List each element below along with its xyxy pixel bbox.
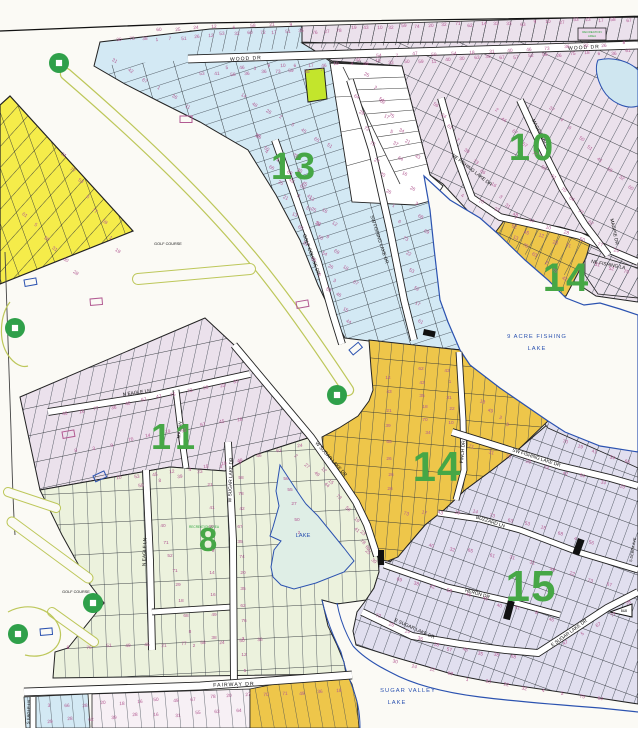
svg-text:59: 59 bbox=[418, 59, 424, 65]
svg-text:75: 75 bbox=[570, 51, 576, 57]
svg-text:10: 10 bbox=[377, 25, 383, 31]
svg-text:50: 50 bbox=[153, 697, 159, 703]
svg-text:21: 21 bbox=[386, 408, 392, 414]
svg-text:50: 50 bbox=[239, 638, 245, 644]
svg-text:10: 10 bbox=[545, 19, 551, 25]
svg-text:28: 28 bbox=[67, 716, 73, 722]
svg-text:15: 15 bbox=[203, 464, 209, 470]
svg-text:77: 77 bbox=[181, 641, 187, 647]
svg-text:GOLF COURSE: GOLF COURSE bbox=[62, 590, 90, 594]
svg-text:S EAGLE LN: S EAGLE LN bbox=[26, 700, 32, 725]
svg-text:36: 36 bbox=[257, 637, 263, 643]
svg-text:74: 74 bbox=[239, 554, 245, 560]
svg-text:50: 50 bbox=[294, 517, 300, 523]
svg-text:14: 14 bbox=[209, 570, 215, 576]
svg-text:10: 10 bbox=[116, 475, 122, 481]
svg-text:LAKE: LAKE bbox=[528, 346, 547, 352]
svg-text:14: 14 bbox=[385, 375, 391, 381]
svg-text:62: 62 bbox=[467, 23, 473, 29]
svg-text:23: 23 bbox=[197, 469, 203, 475]
svg-text:40: 40 bbox=[208, 524, 214, 530]
svg-text:35: 35 bbox=[304, 69, 310, 75]
svg-text:AREA: AREA bbox=[588, 34, 596, 38]
svg-text:34: 34 bbox=[425, 430, 431, 436]
svg-text:28: 28 bbox=[82, 703, 88, 709]
svg-text:21: 21 bbox=[161, 643, 167, 649]
svg-text:61: 61 bbox=[276, 448, 282, 454]
svg-text:45: 45 bbox=[144, 642, 150, 648]
svg-text:27: 27 bbox=[245, 692, 251, 698]
svg-text:41: 41 bbox=[209, 505, 215, 511]
svg-text:18: 18 bbox=[469, 50, 475, 56]
svg-text:59: 59 bbox=[431, 52, 437, 58]
svg-text:41: 41 bbox=[214, 71, 220, 77]
svg-text:36: 36 bbox=[611, 51, 617, 57]
svg-text:20: 20 bbox=[428, 23, 434, 29]
svg-text:23: 23 bbox=[585, 17, 591, 23]
svg-text:20: 20 bbox=[240, 570, 246, 576]
svg-text:26: 26 bbox=[388, 472, 394, 478]
svg-text:43: 43 bbox=[444, 368, 450, 374]
svg-text:36: 36 bbox=[244, 71, 250, 77]
svg-text:32: 32 bbox=[234, 31, 240, 37]
svg-text:56: 56 bbox=[283, 476, 289, 482]
svg-text:33: 33 bbox=[493, 21, 499, 27]
svg-text:38: 38 bbox=[142, 36, 148, 42]
svg-text:40: 40 bbox=[445, 57, 451, 63]
svg-text:21: 21 bbox=[269, 22, 275, 28]
svg-text:27: 27 bbox=[324, 29, 330, 35]
svg-text:25: 25 bbox=[175, 27, 181, 33]
svg-text:14: 14 bbox=[413, 443, 462, 490]
svg-text:39: 39 bbox=[111, 715, 117, 721]
svg-text:54: 54 bbox=[451, 51, 457, 57]
svg-text:16: 16 bbox=[153, 712, 159, 718]
svg-text:35: 35 bbox=[298, 28, 304, 34]
svg-text:58: 58 bbox=[238, 475, 244, 481]
svg-text:26: 26 bbox=[386, 456, 392, 462]
svg-text:24: 24 bbox=[297, 443, 303, 449]
svg-text:RECREATION AREA: RECREATION AREA bbox=[189, 525, 220, 529]
svg-text:53: 53 bbox=[199, 71, 205, 77]
svg-text:35: 35 bbox=[240, 586, 246, 592]
svg-text:65: 65 bbox=[386, 439, 392, 445]
svg-text:58: 58 bbox=[200, 640, 206, 646]
svg-text:10: 10 bbox=[448, 420, 454, 426]
svg-text:5: 5 bbox=[244, 668, 247, 674]
svg-text:78: 78 bbox=[336, 28, 342, 34]
svg-text:20: 20 bbox=[226, 693, 232, 699]
svg-text:36: 36 bbox=[317, 689, 323, 695]
svg-text:40: 40 bbox=[507, 48, 513, 54]
svg-text:49: 49 bbox=[299, 691, 305, 697]
svg-text:51: 51 bbox=[181, 36, 187, 42]
svg-text:38: 38 bbox=[211, 635, 217, 641]
svg-text:14: 14 bbox=[481, 21, 487, 27]
svg-text:71: 71 bbox=[282, 691, 288, 697]
svg-text:53: 53 bbox=[134, 474, 140, 480]
svg-text:10: 10 bbox=[280, 63, 286, 69]
svg-text:50: 50 bbox=[138, 483, 144, 489]
svg-text:76: 76 bbox=[241, 618, 247, 624]
svg-text:18: 18 bbox=[422, 404, 428, 410]
svg-text:11: 11 bbox=[151, 416, 201, 457]
svg-text:26: 26 bbox=[601, 43, 607, 49]
svg-text:SUGAR VALLEY: SUGAR VALLEY bbox=[380, 688, 436, 694]
svg-text:72: 72 bbox=[260, 30, 266, 36]
svg-text:74: 74 bbox=[414, 24, 420, 30]
svg-text:51: 51 bbox=[285, 29, 291, 35]
svg-text:18: 18 bbox=[119, 701, 125, 707]
svg-text:36: 36 bbox=[564, 44, 570, 50]
svg-text:73: 73 bbox=[129, 36, 135, 42]
svg-text:45: 45 bbox=[152, 472, 158, 478]
svg-text:71: 71 bbox=[163, 540, 169, 546]
svg-text:54: 54 bbox=[376, 53, 382, 59]
svg-text:35: 35 bbox=[237, 539, 243, 545]
svg-text:35: 35 bbox=[419, 393, 425, 399]
svg-text:11: 11 bbox=[431, 59, 437, 65]
svg-text:60: 60 bbox=[247, 30, 253, 36]
svg-text:70: 70 bbox=[263, 692, 269, 698]
svg-text:33: 33 bbox=[388, 60, 394, 66]
svg-text:32: 32 bbox=[583, 43, 589, 49]
svg-text:24: 24 bbox=[193, 25, 199, 31]
svg-text:9 ACRE FISHING: 9 ACRE FISHING bbox=[507, 334, 567, 340]
svg-text:53: 53 bbox=[219, 31, 225, 37]
svg-text:76: 76 bbox=[312, 30, 318, 36]
svg-text:55: 55 bbox=[287, 487, 293, 493]
svg-text:68: 68 bbox=[183, 613, 189, 619]
svg-text:32: 32 bbox=[388, 25, 394, 31]
svg-text:28: 28 bbox=[132, 712, 138, 718]
svg-text:78: 78 bbox=[210, 694, 216, 700]
svg-text:12: 12 bbox=[241, 652, 247, 658]
svg-text:26: 26 bbox=[387, 486, 393, 492]
svg-text:73: 73 bbox=[275, 69, 281, 75]
svg-text:73: 73 bbox=[544, 46, 550, 52]
svg-text:60: 60 bbox=[156, 27, 162, 33]
svg-text:30: 30 bbox=[459, 56, 465, 62]
svg-text:43: 43 bbox=[386, 389, 392, 395]
svg-text:52: 52 bbox=[528, 53, 534, 59]
svg-text:17: 17 bbox=[308, 63, 314, 69]
svg-text:29: 29 bbox=[175, 582, 181, 588]
svg-text:78: 78 bbox=[238, 491, 244, 497]
svg-text:42: 42 bbox=[239, 506, 245, 512]
svg-text:8: 8 bbox=[189, 629, 192, 635]
svg-text:31: 31 bbox=[489, 49, 495, 55]
svg-text:46: 46 bbox=[256, 453, 262, 459]
svg-text:26: 26 bbox=[194, 34, 200, 40]
svg-text:22: 22 bbox=[449, 406, 455, 412]
svg-text:56: 56 bbox=[542, 52, 548, 58]
svg-text:43: 43 bbox=[363, 25, 369, 31]
svg-text:36: 36 bbox=[261, 69, 267, 75]
svg-text:27: 27 bbox=[559, 20, 565, 26]
svg-text:49: 49 bbox=[363, 61, 369, 67]
svg-text:1: 1 bbox=[449, 379, 452, 385]
svg-text:26: 26 bbox=[556, 53, 562, 59]
svg-text:19: 19 bbox=[351, 25, 357, 31]
svg-text:63: 63 bbox=[214, 709, 220, 715]
svg-text:67: 67 bbox=[237, 524, 243, 530]
svg-text:51: 51 bbox=[106, 643, 112, 649]
svg-text:30: 30 bbox=[116, 37, 122, 43]
svg-text:58: 58 bbox=[610, 17, 616, 23]
svg-text:71: 71 bbox=[172, 568, 178, 574]
svg-text:70: 70 bbox=[422, 417, 428, 423]
svg-text:66: 66 bbox=[64, 703, 70, 709]
svg-text:GOLF COURSE: GOLF COURSE bbox=[154, 242, 182, 246]
svg-text:43: 43 bbox=[419, 380, 425, 386]
svg-text:20: 20 bbox=[100, 700, 106, 706]
svg-text:N EAGLE LN: N EAGLE LN bbox=[142, 537, 149, 566]
svg-text:27: 27 bbox=[291, 501, 297, 507]
svg-text:64: 64 bbox=[236, 708, 242, 714]
svg-text:46: 46 bbox=[239, 65, 245, 71]
svg-text:12: 12 bbox=[208, 33, 214, 39]
svg-text:10: 10 bbox=[333, 61, 339, 67]
svg-text:39: 39 bbox=[177, 474, 183, 480]
svg-text:18: 18 bbox=[584, 50, 590, 56]
svg-text:21: 21 bbox=[207, 482, 213, 488]
svg-text:53: 53 bbox=[573, 17, 579, 23]
svg-text:76: 76 bbox=[86, 645, 92, 651]
svg-text:32: 32 bbox=[441, 22, 447, 28]
svg-text:33: 33 bbox=[506, 21, 512, 27]
svg-text:63: 63 bbox=[474, 55, 480, 61]
svg-text:62: 62 bbox=[240, 603, 246, 609]
svg-text:67: 67 bbox=[190, 697, 196, 703]
svg-text:12: 12 bbox=[169, 469, 175, 475]
svg-text:16: 16 bbox=[137, 699, 143, 705]
svg-text:61: 61 bbox=[625, 48, 631, 54]
svg-text:17: 17 bbox=[598, 18, 604, 24]
svg-text:63: 63 bbox=[520, 22, 526, 28]
svg-text:52: 52 bbox=[167, 553, 173, 559]
svg-text:17: 17 bbox=[271, 30, 277, 36]
svg-text:57: 57 bbox=[513, 55, 519, 61]
svg-text:46: 46 bbox=[526, 47, 532, 53]
svg-text:18: 18 bbox=[178, 598, 184, 604]
svg-text:31: 31 bbox=[175, 713, 181, 719]
svg-text:49: 49 bbox=[173, 698, 179, 704]
svg-text:31: 31 bbox=[446, 395, 452, 401]
svg-text:B&B: B&B bbox=[621, 609, 627, 613]
svg-text:2: 2 bbox=[193, 643, 196, 649]
svg-text:LAKE: LAKE bbox=[388, 700, 407, 706]
svg-text:16: 16 bbox=[210, 592, 216, 598]
svg-text:67: 67 bbox=[626, 18, 632, 24]
svg-text:55: 55 bbox=[195, 710, 201, 716]
svg-text:62: 62 bbox=[418, 366, 424, 372]
svg-text:58: 58 bbox=[250, 23, 256, 29]
svg-text:49: 49 bbox=[211, 612, 217, 618]
svg-text:59: 59 bbox=[288, 68, 294, 74]
svg-text:71: 71 bbox=[455, 21, 461, 27]
svg-text:40: 40 bbox=[160, 523, 166, 529]
svg-text:9: 9 bbox=[212, 548, 215, 554]
svg-text:2: 2 bbox=[298, 530, 301, 536]
svg-text:67: 67 bbox=[499, 55, 505, 61]
svg-text:58: 58 bbox=[230, 72, 236, 78]
svg-text:29: 29 bbox=[47, 719, 53, 725]
svg-text:18: 18 bbox=[336, 688, 342, 694]
svg-text:32: 32 bbox=[355, 57, 361, 63]
svg-text:24: 24 bbox=[219, 640, 225, 646]
svg-text:50: 50 bbox=[404, 59, 410, 65]
svg-text:49: 49 bbox=[125, 643, 131, 649]
svg-text:62: 62 bbox=[88, 717, 94, 723]
svg-text:12: 12 bbox=[211, 24, 217, 30]
svg-text:59: 59 bbox=[401, 23, 407, 29]
svg-text:47: 47 bbox=[412, 51, 418, 57]
svg-text:39: 39 bbox=[385, 423, 391, 429]
